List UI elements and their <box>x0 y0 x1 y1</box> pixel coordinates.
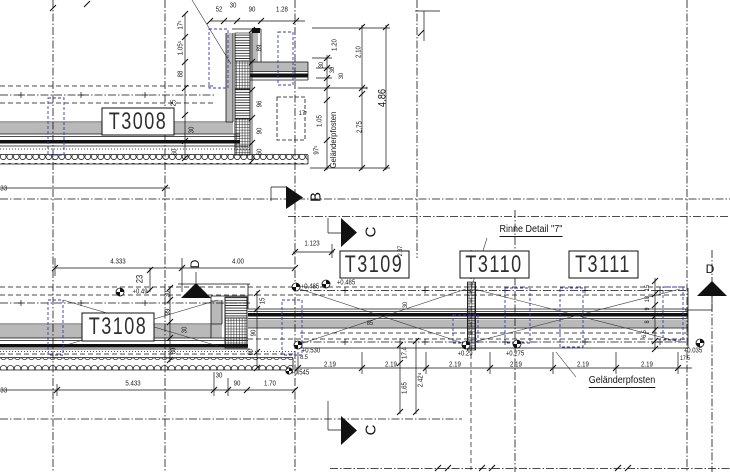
dimension-label: 90 <box>234 379 241 386</box>
dimension-label: 99 <box>163 309 170 316</box>
dimension-label: 8 <box>645 320 652 323</box>
section-letter-d-left: D <box>189 260 201 269</box>
dimension-label: 60 <box>255 149 262 156</box>
dimension-label: 15 <box>258 298 265 305</box>
dimension-label: 1.65 <box>400 382 407 394</box>
section-letter-b: B <box>309 192 324 202</box>
section-letter-d-right: D <box>706 263 715 275</box>
cad-plan-viewport[interactable]: T3008T3108T3109T3110T31115230901.2817⁵1.… <box>0 0 730 472</box>
dimension-label: 2.19 <box>641 360 653 367</box>
dimension-label: 1.123 <box>304 239 319 246</box>
dimension-label: 30 <box>187 127 194 134</box>
component-label-t3108: T3108 <box>89 315 148 339</box>
dimension-label: 4.86 <box>378 89 389 107</box>
dimension-fragment: 433 <box>0 184 7 191</box>
dimension-label: 89 <box>255 45 262 52</box>
dimension-label: 96 <box>255 101 262 108</box>
dimension-label: 4.333 <box>110 257 125 264</box>
dimension-label: 1.70 <box>264 379 276 386</box>
annotation-gelaenderpfosten-bottom: Geländerpfosten <box>589 376 656 388</box>
dimension-label: 30 <box>339 73 346 79</box>
dimension-label: 2.10 <box>354 46 361 58</box>
dimension-label: 17⁵ <box>176 20 183 29</box>
dimension-label: 2.19 <box>510 360 522 367</box>
dimension-label: 90 <box>255 128 262 135</box>
dimension-label: 25 <box>169 100 176 107</box>
component-label-t3110: T3110 <box>465 253 522 277</box>
dimension-label: 9 <box>645 307 652 310</box>
dimension-label: 1 <box>360 86 367 89</box>
section-letter-c-lower: C <box>364 425 379 436</box>
elevation-label: +0.49 <box>132 289 147 296</box>
dimension-label: 1.05⁵ <box>176 41 183 55</box>
component-label-t3008: T3008 <box>109 110 168 134</box>
dimension-label: 30 <box>319 62 326 68</box>
dimension-label: 30 <box>403 302 410 308</box>
dimension-label: 30 <box>230 1 237 8</box>
elevation-label: +0.29 <box>457 351 472 358</box>
elevation-label: +0.485 <box>337 280 355 287</box>
elevation-label: +0.545 <box>291 370 309 377</box>
dimension-label: 2.19 <box>449 360 461 367</box>
dimension-label: 85 <box>367 321 373 328</box>
dimension-label: 60 <box>170 149 177 156</box>
dimension-label: 1.28 <box>276 5 288 12</box>
dimension-label: 10 <box>645 296 652 302</box>
elevation-label: 8.5 <box>300 355 308 362</box>
dimension-label: 1.20 <box>330 39 337 51</box>
dimension-label: 1.05 <box>315 115 322 127</box>
dimension-label: 30 <box>180 327 187 334</box>
dimension-fragment: 433 <box>0 386 7 393</box>
dimension-label: 60 <box>169 348 176 355</box>
dimension-label: 30 <box>216 371 223 378</box>
dimension-label: 2.19 <box>577 360 589 367</box>
dimension-label: 2.37 <box>398 246 405 257</box>
dimension-label: 30 <box>330 67 337 73</box>
component-label-t3111: T3111 <box>575 253 631 277</box>
dimension-label: 60 <box>246 349 253 356</box>
dimension-label: 5.433 <box>125 379 140 386</box>
dimension-label: 17⁵ <box>299 111 307 118</box>
dimension-label: 97⁵ <box>312 145 319 154</box>
elevation-label: +0.485 <box>301 284 319 291</box>
annotation-rinne-detail: Rinne Detail "7" <box>500 225 563 237</box>
elevation-label: +0.035 <box>684 348 702 355</box>
annotation-gelaenderpfosten-vertical: Geländerpfosten <box>329 112 338 169</box>
elevation-label: 17.5 <box>680 356 690 362</box>
dimension-label: 90 <box>249 330 256 337</box>
dimension-label: 23 <box>136 275 145 284</box>
drawing-text-layer: T3008T3108T3109T3110T31115230901.2817⁵1.… <box>0 0 730 472</box>
dimension-label: 2.75 <box>355 121 362 133</box>
dimension-label: 2.19 <box>385 360 397 367</box>
dimension-label: 88 <box>176 71 183 78</box>
elevation-label: +0.275 <box>506 351 524 358</box>
section-letter-c-upper: C <box>364 227 379 238</box>
dimension-label: 2.42⁴ <box>416 373 423 388</box>
dimension-label: 30 <box>163 291 170 298</box>
dimension-label: 4.00 <box>232 257 244 264</box>
dimension-label: 52 <box>216 5 223 12</box>
dimension-label: 90 <box>249 5 256 12</box>
dimension-label: 6.5 <box>642 330 649 338</box>
dimension-label: 15 <box>645 285 652 291</box>
dimension-label: 2.19 <box>324 360 336 367</box>
component-label-t3109: T3109 <box>345 253 404 277</box>
dimension-label: 17.4 <box>400 347 407 359</box>
